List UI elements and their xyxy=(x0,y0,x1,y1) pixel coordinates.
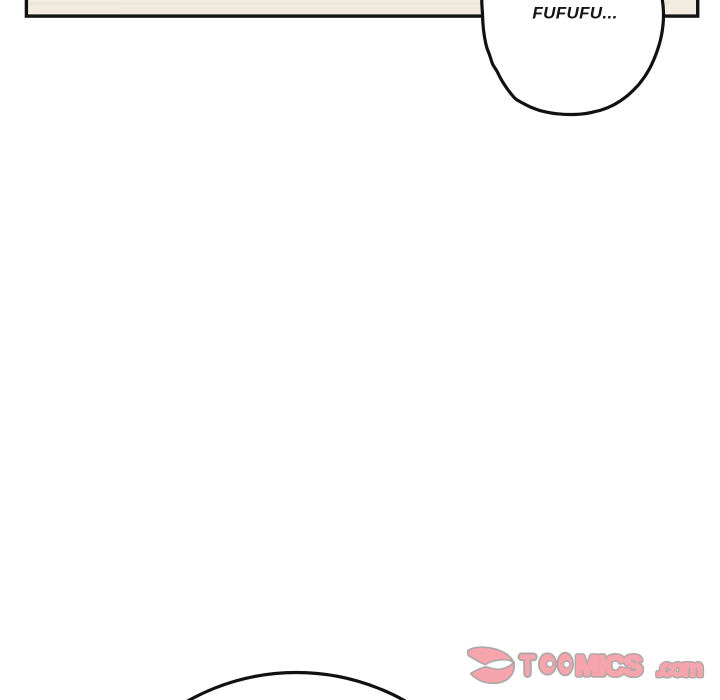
svg-text:MICS: MICS xyxy=(576,650,642,681)
svg-text:.com: .com xyxy=(656,655,703,681)
svg-text:FUFUFU...: FUFUFU... xyxy=(532,4,617,23)
